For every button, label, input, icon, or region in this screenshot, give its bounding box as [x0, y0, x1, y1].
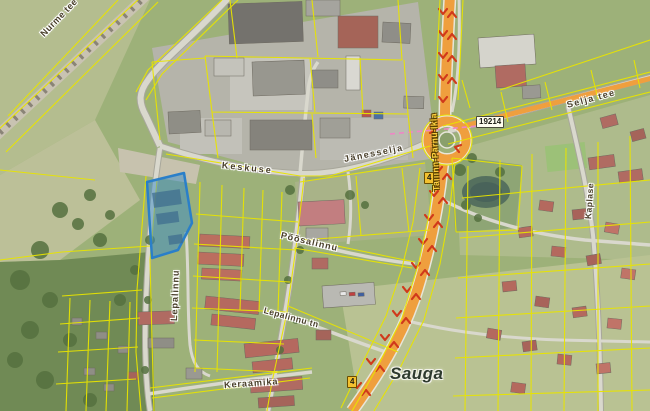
road-badge-19214: 19214: [476, 116, 504, 128]
road-badge-4-north: 4: [424, 172, 434, 184]
place-label-sauga: Sauga: [390, 364, 444, 384]
aerial-basemap: [0, 0, 650, 411]
pond: [462, 176, 510, 208]
map-viewport[interactable]: Nurme tee Keskuse Jänesselja Tallinn-Pär…: [0, 0, 650, 411]
road-badge-4-south: 4: [347, 376, 357, 388]
street-label-lepalinnu: Lepalinnu: [169, 269, 181, 321]
